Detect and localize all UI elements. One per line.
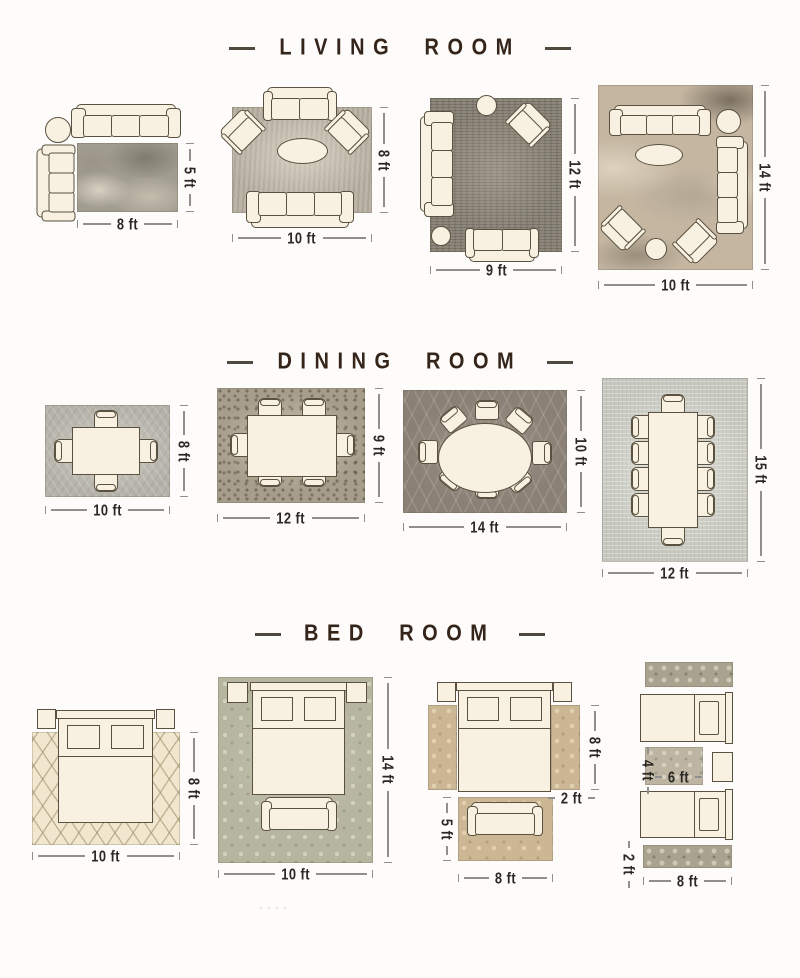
width-dimension: 8 ft xyxy=(77,217,178,231)
sofa xyxy=(420,112,454,216)
width-dimension: 10 ft xyxy=(598,278,753,292)
dimension-label: 12 ft xyxy=(661,565,690,580)
dining-chair xyxy=(695,493,715,517)
runner-rug-right xyxy=(551,705,580,790)
dining-chair xyxy=(335,433,355,457)
width-dimension: 12 ft xyxy=(602,566,748,580)
runner-rug-top xyxy=(645,662,733,687)
dining-chair xyxy=(418,440,438,464)
header-dash-right xyxy=(545,47,571,50)
dining-room-header: DINING ROOM xyxy=(0,350,800,374)
dining-table xyxy=(648,412,698,528)
dimension-label: 10 ft xyxy=(92,848,121,863)
round-side-table xyxy=(431,226,451,246)
dimension-label: 10 ft xyxy=(281,866,310,881)
dining-chair xyxy=(475,400,499,420)
armchair xyxy=(598,205,646,253)
width-dimension: 14 ft xyxy=(403,520,567,534)
bench xyxy=(262,797,336,831)
twin-bed xyxy=(640,694,733,742)
oval-dining-table xyxy=(438,423,532,493)
section-title: LIVING ROOM xyxy=(279,35,520,62)
dimension-label: 12 ft xyxy=(277,510,306,525)
sofa xyxy=(72,104,180,138)
width-dimension: 10 ft xyxy=(32,849,180,863)
nightstand xyxy=(156,709,175,729)
sofa xyxy=(716,137,748,233)
twin-bed xyxy=(640,791,733,838)
dimension-label: 9 ft xyxy=(371,435,386,456)
armchair xyxy=(324,107,372,155)
dimension-label: 14 ft xyxy=(471,519,500,534)
nightstand xyxy=(712,752,733,782)
dimension-label: 8 ft xyxy=(677,873,698,888)
width-dimension: 8 ft xyxy=(643,874,732,888)
dimension-label: 10 ft xyxy=(661,277,690,292)
dining-chair xyxy=(695,415,715,439)
nightstand xyxy=(553,682,572,702)
runner-width-dimension: 2 ft xyxy=(548,791,590,805)
height-dimension: 14 ft xyxy=(758,85,772,270)
dimension-label: 6 ft xyxy=(668,769,689,784)
nightstand xyxy=(37,709,56,729)
watermark xyxy=(258,906,288,910)
dimension-label: 8 ft xyxy=(176,440,191,461)
dimension-label: 14 ft xyxy=(757,163,772,192)
dimension-label: 5 ft xyxy=(182,167,197,188)
dimension-label: 8 ft xyxy=(117,216,138,231)
height-dimension: 12 ft xyxy=(568,98,582,252)
runner-height-dimension: 2 ft xyxy=(622,841,636,873)
dimension-label: 10 ft xyxy=(288,230,317,245)
width-dimension: 10 ft xyxy=(45,503,170,517)
dimension-label: 12 ft xyxy=(567,161,582,190)
dining-chair xyxy=(661,394,685,414)
header-dash-right xyxy=(519,633,545,636)
width-dimension: 8 ft xyxy=(458,871,553,885)
oval-coffee-table xyxy=(635,144,683,166)
middle-rug-height-dimension: 4 ft xyxy=(641,747,655,785)
height-dimension: 14 ft xyxy=(381,677,395,863)
dimension-label: 10 ft xyxy=(573,437,588,466)
runner-rug-left xyxy=(428,705,457,790)
dimension-label: 9 ft xyxy=(485,262,506,277)
armchair xyxy=(218,107,266,155)
dimension-label: 5 ft xyxy=(439,818,454,839)
armchair xyxy=(505,100,553,148)
round-side-table xyxy=(645,238,667,260)
dining-chair xyxy=(695,467,715,491)
section-title: BED ROOM xyxy=(304,621,495,648)
dining-chair xyxy=(94,472,118,492)
sofa xyxy=(36,145,75,220)
dimension-label: 10 ft xyxy=(93,502,122,517)
height-dimension: 8 ft xyxy=(588,705,602,790)
width-dimension: 10 ft xyxy=(218,867,373,881)
header-dash-left xyxy=(227,361,253,364)
header-dash-right xyxy=(547,361,573,364)
dining-table xyxy=(72,427,140,475)
bench xyxy=(468,802,542,836)
round-side-table xyxy=(716,109,741,134)
bed xyxy=(458,683,551,792)
dimension-label: 2 ft xyxy=(621,854,636,875)
foot-rug-height-dimension: 5 ft xyxy=(440,797,454,861)
dimension-label: 4 ft xyxy=(640,760,655,781)
section-title: DINING ROOM xyxy=(278,349,523,376)
height-dimension: 8 ft xyxy=(187,732,201,845)
dimension-label: 2 ft xyxy=(561,790,582,805)
header-dash-left xyxy=(255,633,281,636)
header-dash-left xyxy=(229,47,255,50)
dining-table xyxy=(247,415,337,477)
oval-coffee-table xyxy=(277,138,328,164)
height-dimension: 5 ft xyxy=(183,143,197,212)
dimension-label: 8 ft xyxy=(376,149,391,170)
dimension-label: 8 ft xyxy=(186,778,201,799)
nightstand xyxy=(437,682,456,702)
width-dimension: 12 ft xyxy=(217,511,365,525)
dining-chair xyxy=(138,439,158,463)
rug-placement-guide: LIVING ROOM 8 ft 5 ft 10 ft 8 ft 9 ft 12… xyxy=(0,0,800,978)
width-dimension: 9 ft xyxy=(430,263,562,277)
nightstand xyxy=(346,682,367,703)
bed xyxy=(252,683,345,795)
dining-chair xyxy=(54,439,74,463)
living-rug-8x5 xyxy=(77,143,178,212)
dimension-label: 15 ft xyxy=(753,456,768,485)
sofa xyxy=(247,191,353,228)
dimension-label: 8 ft xyxy=(587,737,602,758)
loveseat xyxy=(466,228,538,262)
height-dimension: 15 ft xyxy=(754,378,768,562)
living-room-header: LIVING ROOM xyxy=(0,36,800,60)
nightstand xyxy=(227,682,248,703)
dimension-label: 14 ft xyxy=(380,756,395,785)
round-side-table xyxy=(476,95,497,116)
width-dimension: 10 ft xyxy=(232,231,372,245)
height-dimension: 8 ft xyxy=(177,405,191,497)
dining-chair xyxy=(532,441,552,465)
armchair xyxy=(672,218,720,266)
height-dimension: 8 ft xyxy=(377,107,391,213)
middle-rug-width-dimension: 6 ft xyxy=(655,770,699,784)
bed-room-header: BED ROOM xyxy=(0,622,800,646)
bed xyxy=(58,711,153,823)
dimension-label: 8 ft xyxy=(495,870,516,885)
dining-chair xyxy=(695,441,715,465)
runner-rug-bottom xyxy=(643,845,732,868)
height-dimension: 9 ft xyxy=(372,388,386,503)
sofa xyxy=(610,105,710,136)
round-side-table xyxy=(45,117,71,143)
dining-chair xyxy=(661,526,685,546)
height-dimension: 10 ft xyxy=(574,390,588,513)
